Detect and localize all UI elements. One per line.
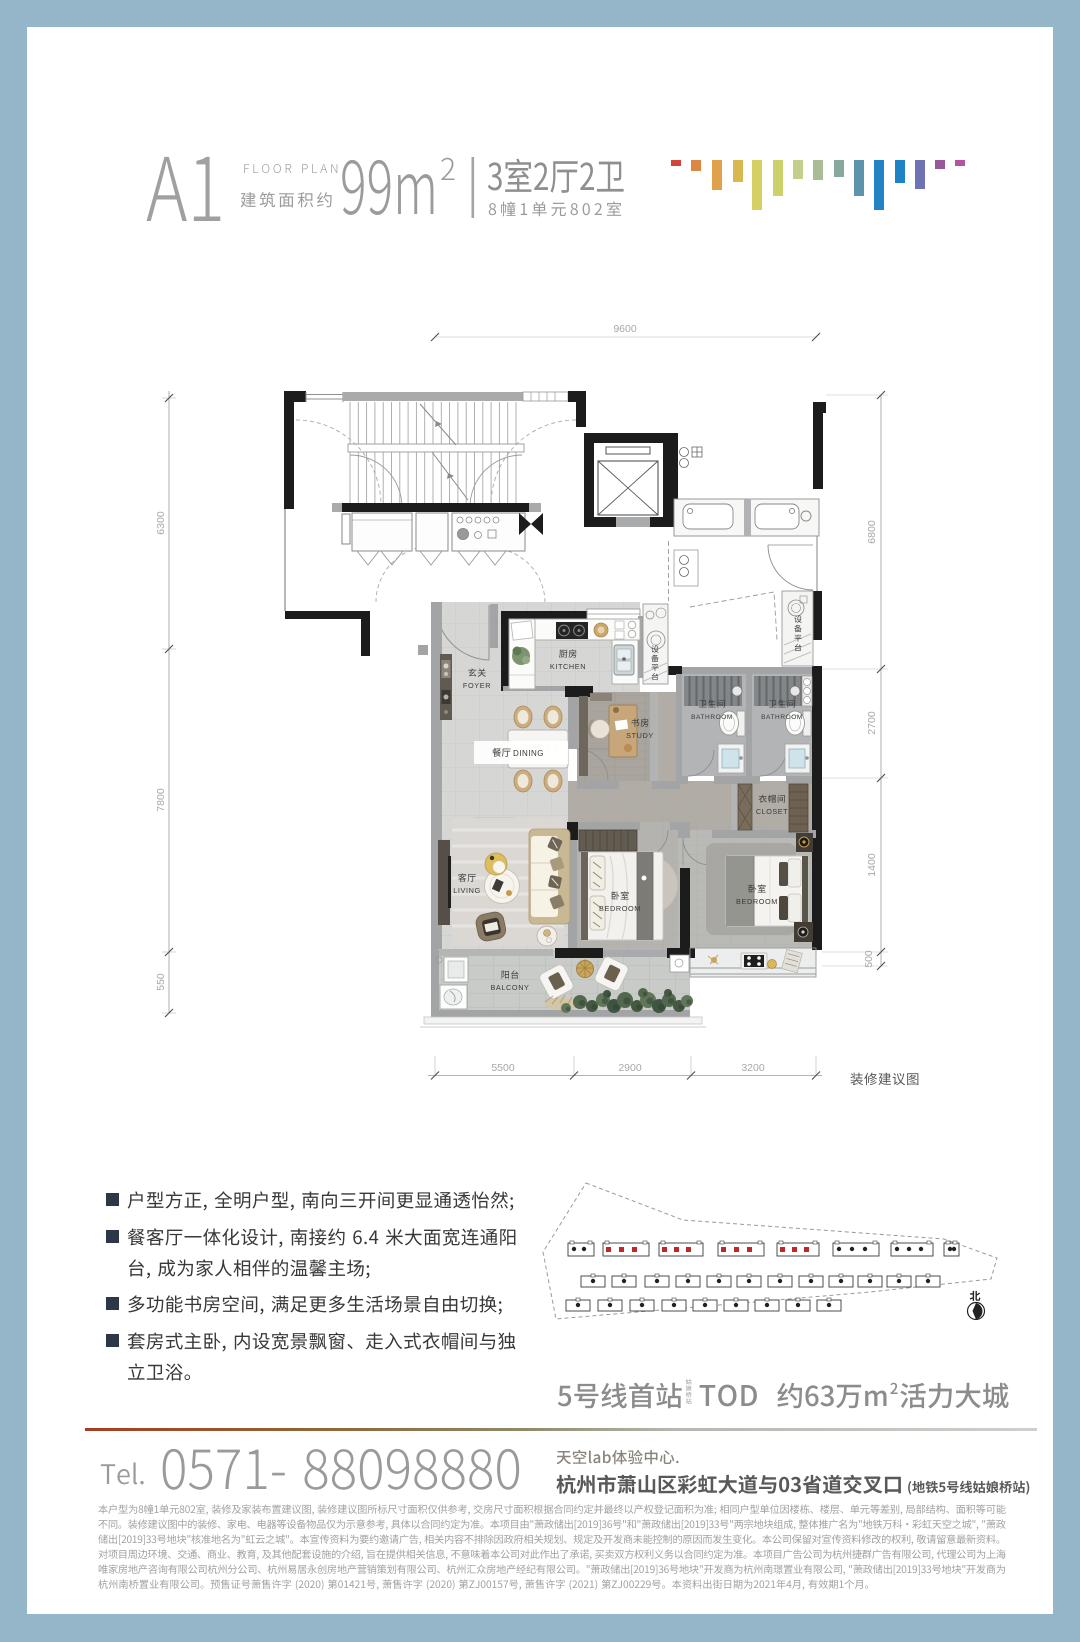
svg-text:KITCHEN: KITCHEN (550, 662, 586, 671)
svg-text:BATHROOM: BATHROOM (691, 714, 733, 721)
svg-text:BEDROOM: BEDROOM (599, 904, 641, 913)
svg-text:STUDY: STUDY (626, 731, 654, 740)
svg-text:6800: 6800 (866, 520, 878, 544)
svg-text:BATHROOM: BATHROOM (761, 714, 803, 721)
svg-text:LIVING: LIVING (453, 886, 481, 895)
svg-text:FOYER: FOYER (463, 681, 491, 690)
svg-text:5500: 5500 (491, 1062, 515, 1074)
svg-text:550: 550 (155, 973, 167, 991)
svg-text:2900: 2900 (618, 1062, 642, 1074)
svg-text:BEDROOM: BEDROOM (736, 897, 778, 906)
svg-text:7800: 7800 (155, 788, 167, 812)
svg-text:3200: 3200 (741, 1062, 765, 1074)
svg-text:BALCONY: BALCONY (490, 983, 529, 992)
svg-text:6300: 6300 (155, 511, 167, 535)
svg-text:2700: 2700 (866, 711, 878, 735)
svg-text:CLOSET: CLOSET (756, 807, 788, 816)
svg-text:DINING: DINING (513, 749, 544, 758)
svg-text:500: 500 (863, 950, 875, 968)
svg-text:1400: 1400 (866, 853, 878, 877)
svg-text:9600: 9600 (613, 323, 637, 335)
